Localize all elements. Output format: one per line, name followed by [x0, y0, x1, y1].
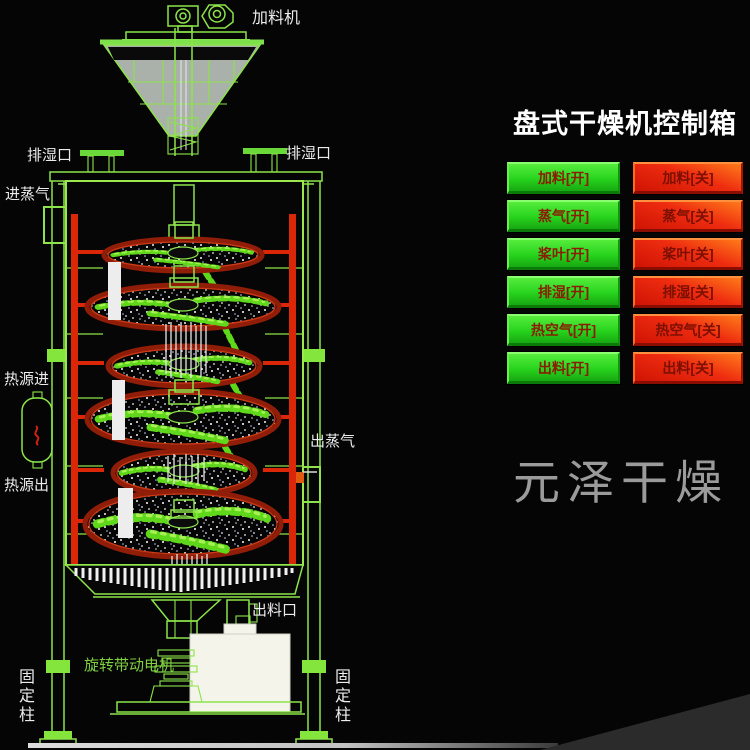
- steam-out-label: 出蒸气: [310, 433, 355, 450]
- steam-outlet-pipe: [303, 467, 320, 502]
- dryer-disc: [113, 451, 255, 495]
- vent-left-label: 排湿口: [27, 147, 72, 164]
- discharge-on-button[interactable]: 出料[开]: [507, 352, 620, 384]
- dryer-disc: [85, 491, 281, 557]
- dehumidify-on-button[interactable]: 排湿[开]: [507, 276, 620, 308]
- screenshot-root: 加料机 排湿口 排湿口 进蒸气 热源进 热源出 出蒸气 出料口 旋转带动电机 固…: [0, 0, 750, 750]
- moisture-vent-left: [80, 150, 124, 172]
- feeder-label: 加料机: [252, 10, 300, 27]
- feed-hopper: [100, 28, 264, 156]
- moisture-vent-right: [243, 148, 287, 172]
- feed-off-button[interactable]: 加料[关]: [633, 162, 743, 194]
- hot-air-off-button[interactable]: 热空气[关]: [633, 314, 743, 346]
- feed-on-button[interactable]: 加料[开]: [507, 162, 620, 194]
- hot-air-on-button[interactable]: 热空气[开]: [507, 314, 620, 346]
- steam-off-button[interactable]: 蒸气[关]: [633, 200, 743, 232]
- watermark-text: 元泽干燥: [513, 444, 729, 513]
- discharge-off-button[interactable]: 出料[关]: [633, 352, 743, 384]
- steam-inlet-pipe: [44, 207, 66, 243]
- heat-source-tank: [22, 392, 52, 468]
- vent-right-label: 排湿口: [286, 145, 331, 162]
- drive-motor-label: 旋转带动电机: [84, 657, 174, 674]
- fixed-column-left-label: 固定柱: [12, 668, 36, 725]
- feeder-motor: [122, 5, 250, 40]
- steam-on-button[interactable]: 蒸气[开]: [507, 200, 620, 232]
- steam-in-label: 进蒸气: [5, 186, 50, 203]
- discharge-port-label: 出料口: [252, 602, 297, 619]
- control-panel-buttons: 加料[开] 加料[关] 蒸气[开] 蒸气[关] 桨叶[开] 桨叶[关] 排湿[开…: [507, 162, 743, 384]
- control-panel-title: 盘式干燥机控制箱: [500, 102, 750, 141]
- fixed-column-right-label: 固定柱: [328, 668, 352, 725]
- heat-source-out-label: 热源出: [4, 477, 49, 494]
- heat-source-in-label: 热源进: [4, 371, 49, 388]
- paddle-on-button[interactable]: 桨叶[开]: [507, 238, 620, 270]
- discharge-cone: [66, 565, 303, 597]
- dehumidify-off-button[interactable]: 排湿[关]: [633, 276, 743, 308]
- paddle-off-button[interactable]: 桨叶[关]: [633, 238, 743, 270]
